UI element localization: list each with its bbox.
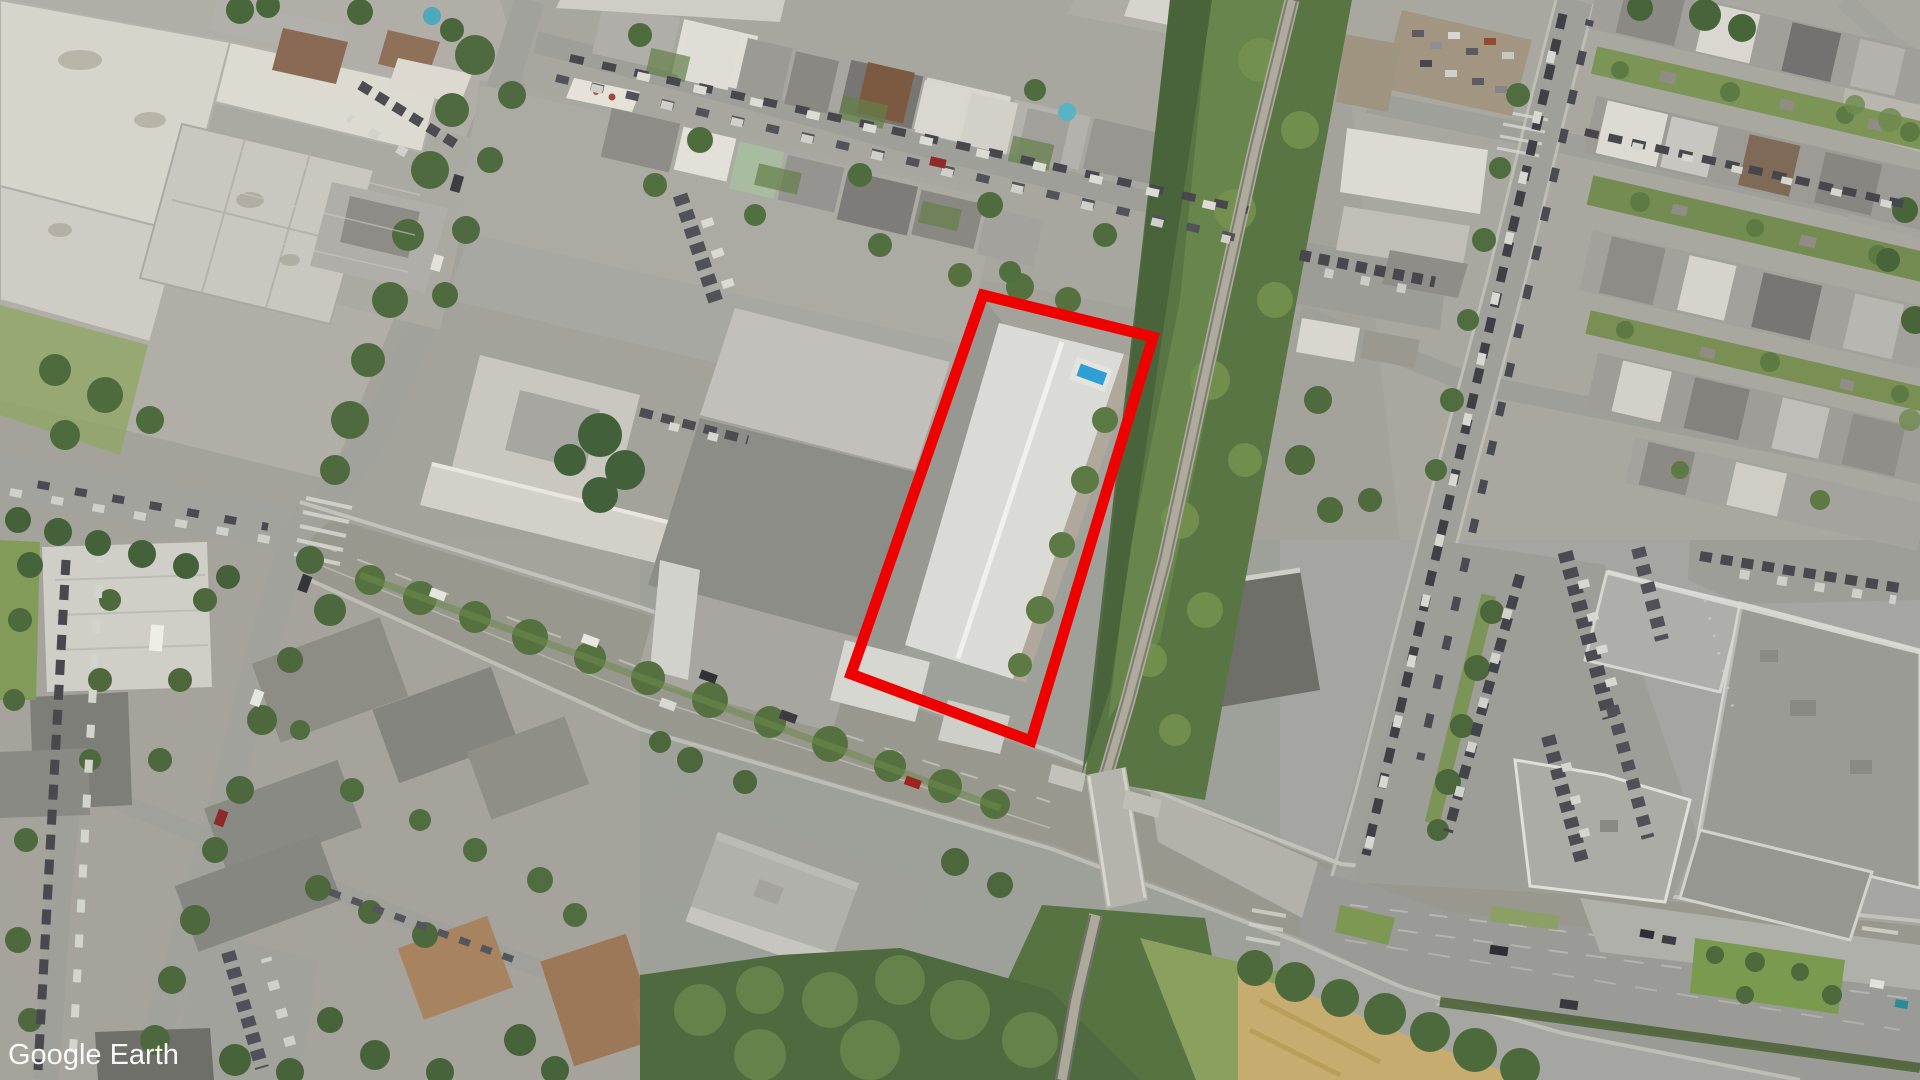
svg-text:Google Earth: Google Earth bbox=[8, 1039, 179, 1071]
